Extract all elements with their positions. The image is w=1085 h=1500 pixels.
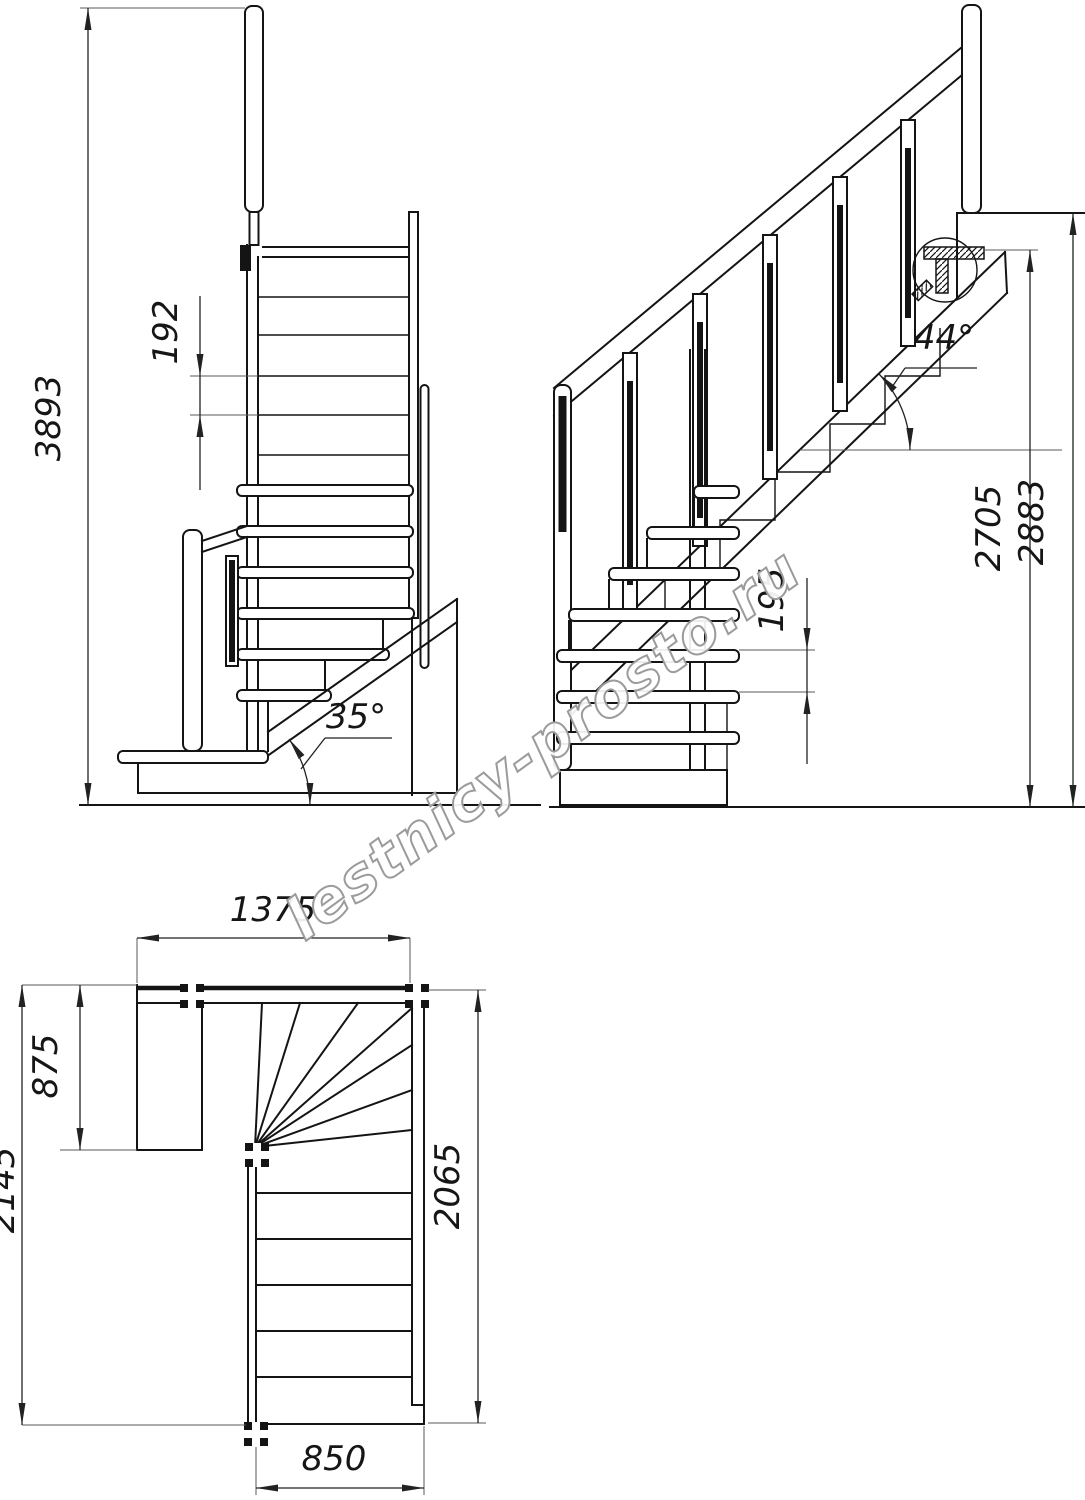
plan-post-top-right	[405, 984, 429, 1008]
dim-side-floor-height: 2883	[1012, 213, 1073, 807]
dim-text-2065: 2065	[428, 1143, 468, 1230]
plan-flight-treads	[256, 1193, 412, 1377]
front-upper-flight	[247, 212, 429, 751]
dim-text-875: 875	[26, 1034, 66, 1099]
plan-post-center	[245, 1143, 269, 1167]
front-lower-newel-post	[183, 526, 247, 751]
plan-winder-fan	[255, 1003, 412, 1147]
side-top-newel-post	[962, 5, 981, 213]
dim-front-overall-height: 3893	[29, 8, 245, 805]
dim-text-2705: 2705	[969, 485, 1009, 572]
dim-plan-flight-width: 850	[256, 1426, 424, 1495]
front-first-step	[118, 751, 268, 793]
angle-text-35: 35°	[326, 697, 386, 737]
stair-drawing: 3893 192 35°	[0, 0, 1085, 1500]
dim-plan-flight-length: 2065	[428, 990, 486, 1423]
front-view: 3893 192 35°	[29, 6, 540, 805]
dim-text-192: 192	[146, 300, 186, 365]
dim-text-2145: 2145	[0, 1147, 23, 1234]
plan-post-bottom	[244, 1422, 268, 1446]
dim-plan-landing-depth: 875	[22, 985, 137, 1150]
front-top-newel-post	[240, 6, 263, 271]
plan-post-top-left	[180, 984, 204, 1008]
dim-text-3893: 3893	[29, 375, 69, 462]
angle-text-44: 44°	[914, 318, 974, 358]
dim-text-850: 850	[302, 1439, 367, 1479]
side-base-plinth	[560, 770, 727, 805]
plan-view: 1375 875 2145 2065 850	[0, 890, 486, 1495]
plan-outline	[137, 985, 425, 1424]
side-detail-circle	[912, 238, 984, 302]
dim-text-2883: 2883	[1012, 479, 1052, 566]
dim-front-riser-spacing: 192	[146, 296, 258, 490]
blueprint-page: 3893 192 35°	[0, 0, 1085, 1500]
angle-front-35: 35°	[289, 697, 392, 805]
